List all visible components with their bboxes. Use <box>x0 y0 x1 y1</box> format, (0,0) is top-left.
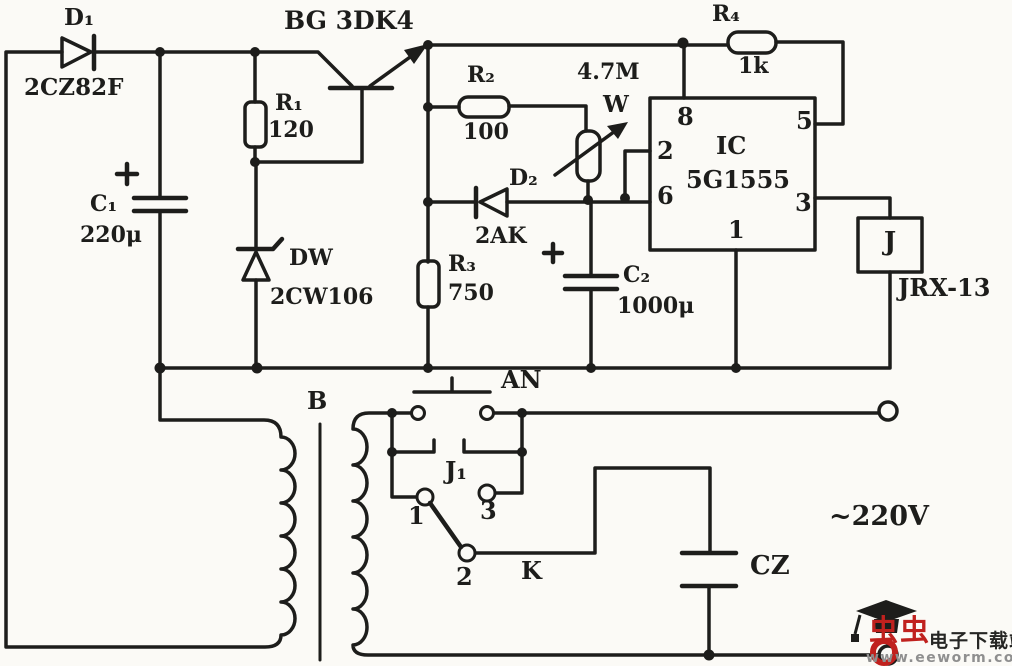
label-d1-part: 2CZ82F <box>24 76 123 99</box>
label-switch-k: K <box>521 559 542 583</box>
label-r1-ref: R₁ <box>275 92 303 114</box>
label-pin8: 8 <box>677 105 694 129</box>
timing-net <box>428 151 650 217</box>
label-contact-3: 3 <box>480 499 497 523</box>
schematic-page: D₁ 2CZ82F BG 3DK4 R₁ 120 C₁ 220μ DW 2CW1… <box>0 0 1012 666</box>
label-pin6: 6 <box>657 184 674 208</box>
label-c2-ref: C₂ <box>623 264 650 286</box>
label-r3-ref: R₃ <box>448 253 476 275</box>
label-r2-val: 100 <box>463 121 509 143</box>
label-pin1: 1 <box>728 218 745 242</box>
label-pushbutton: AN <box>501 368 542 392</box>
resistor-r3 <box>418 261 439 368</box>
zener-dw <box>238 162 282 368</box>
socket-cz <box>682 553 736 655</box>
label-r2-ref: R₂ <box>467 64 495 86</box>
label-ic-part: 5G1555 <box>686 168 790 192</box>
capacitor-c1 <box>117 52 186 368</box>
label-c1-val: 220μ <box>80 224 142 246</box>
transformer-secondary-winding <box>6 52 295 647</box>
watermark-site-name: 电子下载站 <box>929 632 1012 651</box>
label-dw-part: 2CW106 <box>270 286 373 308</box>
resistor-r4 <box>728 32 776 53</box>
label-contact-2: 2 <box>456 565 473 589</box>
watermark-logo-text: 虫虫 <box>869 616 931 645</box>
resistor-r1 <box>245 52 266 162</box>
label-pin3: 3 <box>795 191 812 215</box>
label-contact-1: 1 <box>408 504 425 528</box>
diode-d2 <box>480 189 507 216</box>
label-dw-ref: DW <box>289 247 333 269</box>
label-pin5: 5 <box>796 109 813 133</box>
capacitor-c2 <box>544 200 617 368</box>
label-d2-ref: D₂ <box>509 167 538 189</box>
label-d1-ref: D₁ <box>64 6 94 29</box>
label-mains: ~220V <box>829 503 929 530</box>
label-relay-part: JRX-13 <box>898 276 990 300</box>
label-c2-val: 1000μ <box>617 295 694 317</box>
label-w-val: 4.7M <box>577 61 640 83</box>
label-c1-ref: C₁ <box>90 193 117 215</box>
pushbutton-an-bar <box>414 378 490 392</box>
label-socket: CZ <box>750 553 790 579</box>
label-r4-val: 1k <box>738 55 769 77</box>
potentiometer-w <box>555 122 628 200</box>
circuit-artwork <box>0 0 1012 666</box>
label-r4-ref: R₄ <box>712 3 740 25</box>
label-ic-ref: IC <box>716 134 746 158</box>
label-relay-ref: J <box>858 229 922 255</box>
relay-contact-j1 <box>392 440 522 452</box>
transformer-primary-winding <box>353 413 879 655</box>
label-transistor: BG 3DK4 <box>284 8 414 33</box>
label-r1-val: 120 <box>268 119 314 141</box>
switch-k-blade <box>430 503 461 547</box>
label-d2-part: 2AK <box>475 225 527 247</box>
label-pin2: 2 <box>657 139 674 163</box>
mains-terminal-top <box>879 402 897 420</box>
watermark-url: www.eeworm.com <box>866 651 1012 665</box>
label-contact-ref: J₁ <box>445 459 467 483</box>
label-transformer: B <box>307 389 327 413</box>
label-w-ref: W <box>603 93 629 116</box>
label-r3-val: 750 <box>448 282 494 304</box>
junction-dots <box>155 38 742 661</box>
